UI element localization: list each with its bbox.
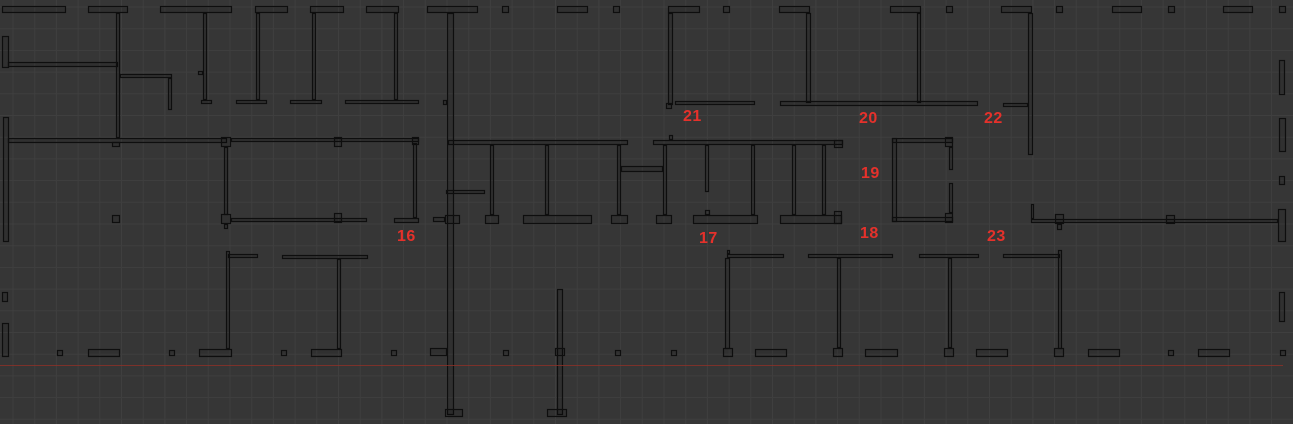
wall-segment (1279, 210, 1286, 242)
wall-segment (170, 351, 175, 356)
wall-segment (4, 118, 9, 242)
wall-segment (414, 144, 417, 218)
wall-segment (1057, 7, 1063, 13)
wall-segment (1058, 225, 1062, 230)
wall-segment (920, 255, 979, 258)
wall-segment (612, 216, 628, 224)
wall-segment (809, 255, 893, 258)
wall-segment (1169, 351, 1174, 356)
wall-segment (823, 146, 826, 215)
wall-segment (1089, 350, 1120, 357)
wall-segment (222, 138, 231, 147)
wall-segment (676, 102, 755, 105)
wall-segment (616, 351, 621, 356)
wall-segment (446, 410, 463, 417)
wall-segment (1199, 350, 1230, 357)
wall-segment (311, 7, 344, 13)
wall-segment (1002, 7, 1032, 13)
wall-segment (9, 139, 227, 143)
wall-segment (222, 215, 231, 224)
wall-segment (1004, 104, 1028, 107)
room-label-16: 16 (397, 230, 416, 243)
wall-segment (225, 225, 228, 229)
wall-segment (169, 79, 172, 110)
wall-segment (1280, 7, 1286, 13)
wall-segment (834, 349, 843, 357)
wall-segment (556, 349, 565, 356)
room-label-22: 22 (984, 112, 1003, 125)
wall-segment (866, 350, 898, 357)
wall-segment (1280, 119, 1286, 152)
wall-segment (335, 138, 342, 147)
wall-segment (622, 167, 663, 172)
wall-segment (392, 351, 397, 356)
wall-segment (449, 141, 628, 145)
wall-segment (9, 63, 118, 67)
wall-segment (446, 216, 460, 224)
wall-segment (1224, 7, 1253, 13)
wall-segment (395, 14, 398, 100)
wall-segment (1032, 205, 1034, 219)
wall-segment (117, 14, 120, 138)
wall-segment (113, 143, 120, 147)
wall-segment (946, 138, 953, 147)
wall-segment (838, 259, 841, 348)
wall-segment (835, 212, 842, 224)
wall-segment (367, 7, 399, 13)
wall-segment (793, 146, 796, 215)
wall-segment (949, 259, 952, 348)
wall-segment (950, 148, 953, 170)
wall-segment (89, 7, 128, 13)
wall-segment (491, 146, 494, 215)
wall-segment (657, 216, 672, 224)
wall-segment (232, 139, 419, 142)
wall-segment (669, 7, 700, 13)
wall-segment (667, 104, 672, 109)
wall-segment (504, 351, 509, 356)
room-label-19: 19 (861, 167, 880, 180)
wall-segment (161, 7, 232, 13)
room-label-17: 17 (699, 232, 718, 245)
wall-segment (113, 216, 120, 223)
wall-segment (1056, 215, 1064, 224)
wall-segment (313, 14, 316, 100)
wall-segment (893, 139, 953, 143)
wall-segment (1004, 255, 1060, 258)
wall-segment (1055, 349, 1064, 357)
wall-segment (282, 351, 287, 356)
wall-segment (1280, 177, 1285, 185)
wall-segment (780, 7, 810, 13)
wall-segment (434, 218, 445, 222)
wall-segment (428, 7, 478, 13)
wall-segment (726, 259, 730, 349)
wall-segment (346, 101, 419, 104)
wall-segment (3, 293, 8, 302)
wall-segment (199, 72, 203, 75)
wall-segment (503, 7, 509, 13)
wall-segment (947, 7, 953, 13)
wall-segment (1113, 7, 1142, 13)
wall-segment (670, 136, 673, 140)
wall-segment (781, 102, 978, 106)
wall-segment (950, 184, 953, 213)
wall-segment (229, 255, 258, 258)
wall-segment (891, 7, 921, 13)
wall-segment (200, 350, 232, 357)
wall-segment (448, 14, 454, 415)
wall-segment (706, 211, 710, 215)
wall-segment (89, 350, 120, 357)
wall-segment (1281, 351, 1286, 356)
wall-segment (728, 251, 730, 254)
wall-segment (694, 216, 758, 224)
wall-segment (447, 191, 485, 194)
wall-segment (1169, 7, 1175, 13)
wall-segment (835, 141, 843, 148)
wall-segment (706, 146, 709, 192)
wall-segment (444, 101, 447, 105)
wall-segment (614, 7, 620, 13)
wall-segment (893, 139, 897, 222)
floorplan-canvas (0, 0, 1293, 424)
room-label-23: 23 (987, 230, 1006, 243)
wall-segment (202, 101, 212, 104)
wall-segment (672, 351, 677, 356)
wall-segment (395, 219, 419, 223)
wall-segment (121, 75, 172, 78)
wall-segment (257, 14, 260, 100)
wall-segment (1029, 14, 1033, 155)
wall-segment (431, 349, 447, 356)
wall-segment (524, 216, 592, 224)
wall-segment (335, 214, 342, 223)
wall-segment (232, 219, 367, 222)
wall-segment (781, 216, 842, 224)
wall-segment (618, 146, 621, 215)
wall-segment (1167, 216, 1175, 224)
wall-segment (338, 260, 341, 349)
wall-segment (237, 101, 267, 104)
wall-segment (918, 14, 921, 103)
wall-segment (225, 148, 228, 215)
room-label-21: 21 (683, 110, 702, 123)
wall-segment (58, 351, 63, 356)
wall-segment (664, 146, 667, 215)
wall-segment (728, 255, 784, 258)
wall-segment (945, 349, 954, 357)
wall-segment (548, 410, 567, 417)
wall-segment (756, 350, 787, 357)
wall-segment (724, 349, 733, 357)
wall-segment (1280, 61, 1285, 95)
wall-segment (752, 146, 755, 215)
wall-segment (654, 141, 843, 145)
wall-segment (558, 7, 588, 13)
cad-viewport[interactable]: 1617181920212223 (0, 0, 1293, 424)
wall-segment (1280, 293, 1285, 322)
wall-segment (256, 7, 288, 13)
wall-segment (227, 252, 230, 349)
wall-segment (312, 350, 342, 357)
wall-segment (1032, 220, 1278, 223)
wall-segment (3, 324, 9, 357)
wall-segment (977, 350, 1008, 357)
wall-segment (724, 7, 730, 13)
wall-segment (669, 14, 673, 105)
wall-segment (3, 7, 66, 13)
canvas-background (0, 0, 1293, 424)
wall-segment (807, 14, 811, 103)
wall-segment (486, 216, 499, 224)
wall-segment (893, 218, 953, 222)
wall-segment (291, 101, 322, 104)
room-label-18: 18 (860, 227, 879, 240)
wall-segment (3, 37, 9, 68)
room-label-20: 20 (859, 112, 878, 125)
wall-segment (204, 14, 207, 100)
wall-segment (1059, 251, 1062, 349)
wall-segment (283, 256, 368, 259)
wall-segment (946, 214, 953, 223)
wall-segment (546, 146, 549, 215)
